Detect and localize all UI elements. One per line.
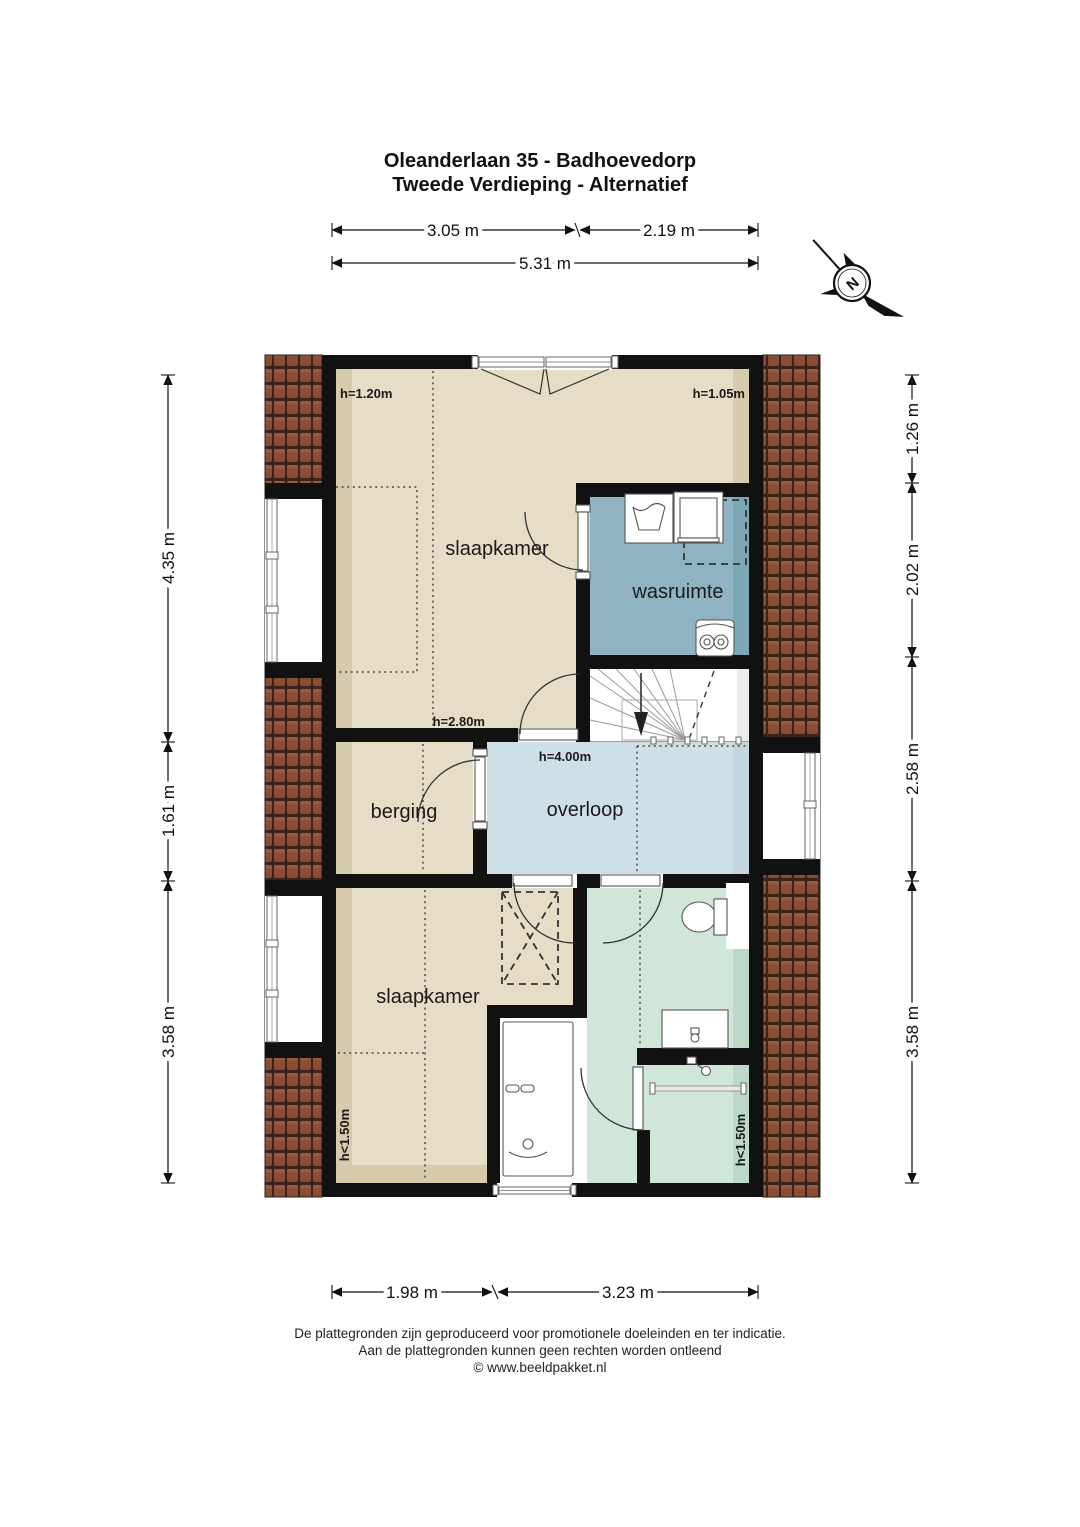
dormer-window-left-bottom	[265, 880, 322, 1058]
label-berging: berging	[371, 801, 438, 823]
page-title-line1: Oleanderlaan 35 - Badhoevedorp	[384, 150, 696, 172]
window-bottom	[493, 1183, 576, 1197]
dim-bottom-1: 1.98 m	[386, 1283, 438, 1302]
label-overloop: overloop	[547, 799, 624, 821]
label-h120: h=1.20m	[340, 386, 392, 401]
label-h150-left: h<1.50m	[337, 1109, 352, 1161]
label-h105: h=1.05m	[693, 386, 745, 401]
dim-right-1: 1.26 m	[903, 403, 922, 455]
dim-bottom-2: 3.23 m	[602, 1283, 654, 1302]
roof-left	[265, 355, 322, 1197]
label-h150-right: h<1.50m	[733, 1114, 748, 1166]
washbasin-icon	[662, 1010, 728, 1048]
floorplan-canvas: Oleanderlaan 35 - Badhoevedorp Tweede Ve…	[0, 0, 1080, 1527]
dormer-window-right	[763, 737, 820, 875]
roof-right	[763, 355, 820, 1197]
dimensions-top: 3.05 m 2.19 m 5.31 m	[332, 221, 758, 273]
label-slaapkamer-bottom: slaapkamer	[376, 986, 480, 1008]
dim-right-4: 3.58 m	[903, 1006, 922, 1058]
dimensions-right: 1.26 m 2.02 m 2.58 m 3.58 m	[903, 375, 922, 1183]
label-h400: h=4.00m	[539, 749, 591, 764]
label-h280: h=2.80m	[433, 714, 485, 729]
dim-top-2: 2.19 m	[643, 221, 695, 240]
dim-top-total: 5.31 m	[519, 254, 571, 273]
laundry-sink-icon	[625, 494, 673, 543]
dim-right-3: 2.58 m	[903, 743, 922, 795]
header: Oleanderlaan 35 - Badhoevedorp Tweede Ve…	[384, 150, 696, 196]
floorplan-page: Oleanderlaan 35 - Badhoevedorp Tweede Ve…	[0, 0, 1080, 1527]
compass-icon: N	[790, 228, 905, 348]
label-wasruimte: wasruimte	[631, 581, 723, 603]
dim-right-2: 2.02 m	[903, 544, 922, 596]
bathtub-icon	[503, 1022, 573, 1176]
footer-line2: Aan de plattegronden kunnen geen rechten…	[358, 1343, 721, 1358]
boiler-icon	[696, 620, 734, 656]
dimensions-left: 4.35 m 1.61 m 3.58 m	[159, 375, 178, 1183]
dimensions-bottom: 1.98 m 3.23 m	[332, 1283, 758, 1302]
dim-left-3: 3.58 m	[159, 1006, 178, 1058]
dim-left-1: 4.35 m	[159, 532, 178, 584]
label-slaapkamer-top: slaapkamer	[445, 538, 549, 560]
footer: De plattegronden zijn geproduceerd voor …	[294, 1326, 786, 1375]
dim-left-2: 1.61 m	[159, 785, 178, 837]
dim-top-1: 3.05 m	[427, 221, 479, 240]
washing-machine-icon	[674, 492, 723, 543]
footer-line1: De plattegronden zijn geproduceerd voor …	[294, 1326, 786, 1341]
footer-line3: © www.beeldpakket.nl	[473, 1360, 606, 1375]
dormer-window-left-top	[265, 483, 322, 678]
page-title-line2: Tweede Verdieping - Alternatief	[392, 174, 688, 196]
